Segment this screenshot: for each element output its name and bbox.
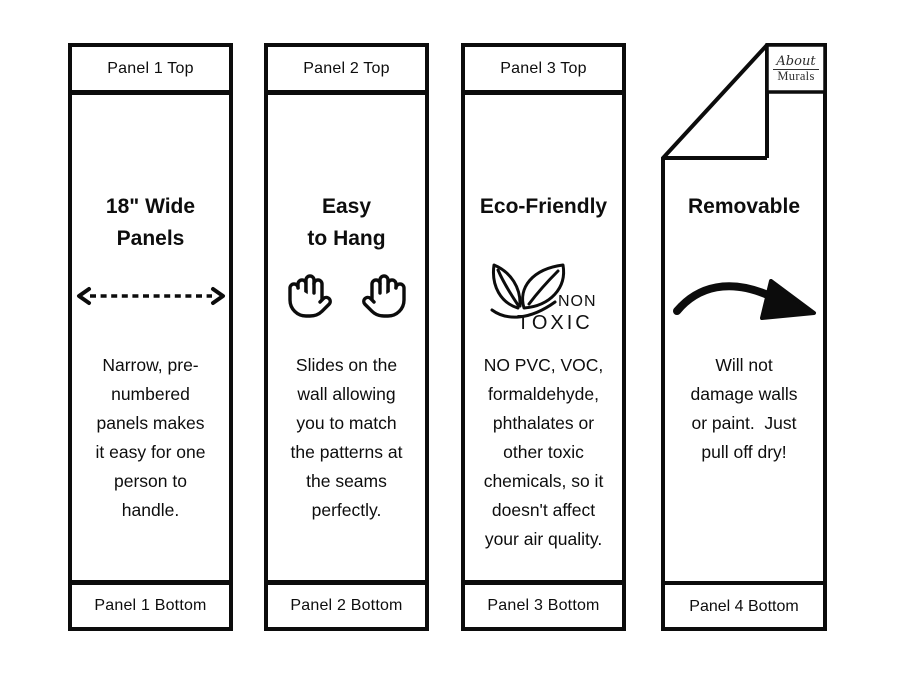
panel-1-title: 18" Wide Panels: [72, 191, 229, 255]
hand-icon: [360, 270, 408, 322]
panel-4: About Murals Removable Will not damage w…: [661, 43, 827, 631]
panel-2-description: Slides on the wall allowing you to match…: [268, 351, 425, 525]
panel-4-title: Removable: [661, 191, 827, 223]
panel-2-bottom-label: Panel 2 Bottom: [268, 580, 425, 627]
panel-4-bottom-label: Panel 4 Bottom: [663, 585, 825, 629]
logo-word-murals: Murals: [777, 70, 814, 83]
non-toxic-text-line2: TOXIC: [517, 312, 593, 334]
non-toxic-leaf-icon: NON TOXIC: [482, 258, 606, 334]
panel-3-title: Eco-Friendly: [465, 191, 622, 223]
panel-3-bottom-label: Panel 3 Bottom: [465, 580, 622, 627]
non-toxic-text-line1: NON: [558, 293, 597, 310]
hand-icon: [286, 270, 334, 322]
width-arrow-icon: [75, 285, 227, 307]
panel-3-top-label: Panel 3 Top: [465, 47, 622, 95]
panel-4-description: Will not damage walls or paint. Just pul…: [661, 351, 827, 467]
panel-1: Panel 1 Top 18" Wide Panels Narrow, pre-…: [68, 43, 233, 631]
aboutmurals-logo: About Murals: [769, 48, 823, 90]
panel-2: Panel 2 Top Easy to Hang Slides on the w…: [264, 43, 429, 631]
panel-1-bottom-label: Panel 1 Bottom: [72, 580, 229, 627]
panel-3: Panel 3 Top Eco-Friendly NON TOXIC NO PV…: [461, 43, 626, 631]
panel-3-description: NO PVC, VOC, formaldehyde, phthalates or…: [465, 351, 622, 554]
panel-1-description: Narrow, pre- numbered panels makes it ea…: [72, 351, 229, 525]
folded-sheet-outline: [661, 43, 827, 631]
curved-arrow-icon: [670, 268, 818, 324]
panel-2-title: Easy to Hang: [268, 191, 425, 255]
logo-word-about: About: [773, 55, 818, 71]
panel-2-top-label: Panel 2 Top: [268, 47, 425, 95]
panel-1-top-label: Panel 1 Top: [72, 47, 229, 95]
